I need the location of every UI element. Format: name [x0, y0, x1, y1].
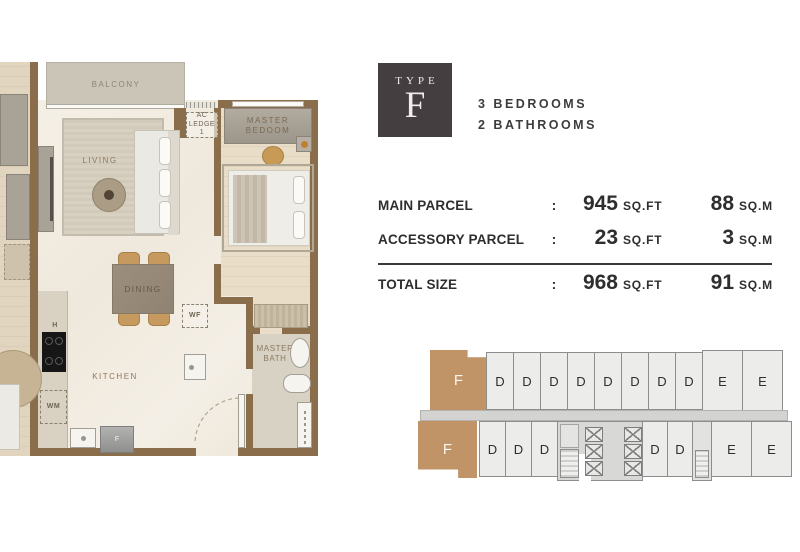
unit-letter: D [603, 374, 612, 389]
row-label: TOTAL SIZE [378, 277, 546, 292]
sofa-cushion [159, 137, 171, 165]
bedroom2-cabinet [6, 174, 30, 240]
elevator-icon [585, 427, 603, 442]
sqft-value: 23 [562, 226, 618, 250]
bed-throw [233, 175, 267, 243]
elevator-icon [624, 427, 642, 442]
bath-dresser [254, 304, 308, 328]
keyplan-bottom-e-units: E E [712, 421, 792, 477]
tv-icon [50, 157, 53, 221]
kitchen-sink [70, 428, 96, 448]
balcony-label: BALCONY [80, 80, 152, 90]
master-bedroom-label-2: BEDOOM [246, 126, 291, 135]
keyplan-unit-e: E [711, 421, 752, 477]
size-row-main-parcel: MAIN PARCEL : 945 SQ.FT 88 SQ.M [378, 192, 772, 226]
washing-machine: WM [40, 390, 67, 424]
row-colon: : [546, 231, 562, 247]
wf-box: WF [182, 304, 208, 328]
row-label: ACCESSORY PARCEL [378, 232, 546, 247]
sofa [134, 130, 180, 234]
keyplan-unit-d: D [567, 352, 595, 410]
unit-letter: D [630, 374, 639, 389]
keyplan-top-d-units: D D D D D D D D [487, 352, 703, 410]
unit-letter: D [650, 442, 659, 457]
sqm-value: 91 [674, 271, 734, 295]
keyplan-unit-e: E [702, 350, 743, 412]
size-table: MAIN PARCEL : 945 SQ.FT 88 SQ.M ACCESSOR… [378, 192, 772, 305]
sqm-unit: SQ.M [734, 233, 778, 247]
keyplan-corridor [420, 410, 788, 421]
keyplan-unit-d: D [540, 352, 568, 410]
keyplan-core [557, 421, 643, 481]
kitchen-label: KITCHEN [80, 372, 150, 382]
balcony-door-window [46, 104, 185, 109]
sqm-value: 88 [674, 192, 734, 216]
keyplan-unit-d: D [594, 352, 622, 410]
faucet-icon [81, 436, 86, 441]
entry-door-arc [192, 394, 244, 448]
row-colon: : [546, 197, 562, 213]
nightstand [296, 136, 312, 152]
ac-ledge-label-3: 1 [200, 129, 204, 136]
elevator-icon [585, 461, 603, 476]
coffee-table [92, 178, 126, 212]
master-window [232, 101, 304, 107]
hob-label: H [50, 322, 60, 331]
dining-label: DINING [125, 285, 162, 294]
stairs-icon [560, 449, 579, 478]
entry-door-leaf [238, 394, 245, 448]
keyplan-unit-d: D [667, 421, 693, 477]
ac-ledge-label-1: AC [197, 112, 208, 119]
bedroom3-bed [0, 384, 20, 450]
master-bed [228, 170, 310, 246]
bed-pillow [293, 211, 305, 239]
sqm-unit: SQ.M [734, 278, 778, 292]
sqm-unit: SQ.M [734, 199, 778, 213]
keyplan-unit-d: D [675, 352, 703, 410]
unit-letter: F [443, 441, 452, 458]
living-label: LIVING [70, 156, 130, 166]
master-bath-label-2: BATH [263, 354, 286, 363]
keyplan-unit-f-top: F [430, 350, 487, 410]
shower-door-icon [304, 408, 306, 444]
keyplan-top-e-units: E E [703, 350, 783, 412]
sqm-value: 3 [674, 226, 734, 250]
unit-letter: D [549, 374, 558, 389]
tv-cabinet [38, 146, 54, 232]
keyplan-unit-d: D [621, 352, 649, 410]
keyplan-unit-d: D [531, 421, 558, 477]
keyplan-unit-d: D [648, 352, 676, 410]
row-colon: : [546, 276, 562, 292]
unit-letter: E [758, 374, 767, 389]
wall-bath-left-lower [246, 394, 253, 450]
burner-icon [55, 357, 63, 365]
elevator-icon [624, 444, 642, 459]
type-badge: TYPE F [378, 63, 452, 137]
coffee-table-decor [104, 190, 114, 200]
unit-letter: D [675, 442, 684, 457]
knob-icon [189, 365, 194, 370]
keyplan-service-shaft [692, 421, 712, 481]
sofa-cushion [159, 201, 171, 229]
floorplan: LIVING BALCONY AC LEDGE 1 MASTER BEDOOM … [0, 58, 320, 462]
master-bath-label-1: MASTER [257, 344, 294, 353]
elevator-icon [624, 461, 642, 476]
sqft-value: 945 [562, 192, 618, 216]
bedrooms-text: 3 BEDROOMS [478, 94, 597, 115]
bathtub [283, 374, 311, 393]
bath-sink [290, 338, 310, 368]
unit-letter: D [488, 442, 497, 457]
ac-louver [186, 102, 216, 108]
keyplan-unit-e: E [751, 421, 792, 477]
unit-letter: D [495, 374, 504, 389]
table-divider [378, 263, 772, 265]
bedroom2-rug [4, 244, 30, 280]
building-key-plan: F D D D D D D D D E E F D D D D D [418, 345, 796, 485]
sqft-value: 968 [562, 271, 618, 295]
burner-icon [45, 357, 53, 365]
size-row-total: TOTAL SIZE : 968 SQ.FT 91 SQ.M [378, 271, 772, 305]
burner-icon [45, 337, 53, 345]
unit-letter: D [576, 374, 585, 389]
ac-ledge-label-2: LEDGE [189, 121, 215, 128]
sofa-cushion [159, 169, 171, 197]
bathrooms-text: 2 BATHROOMS [478, 115, 597, 136]
unit-summary: 3 BEDROOMS 2 BATHROOMS [478, 94, 597, 136]
keyplan-unit-d: D [505, 421, 532, 477]
unit-letter: D [522, 374, 531, 389]
unit-letter: E [727, 442, 736, 457]
unit-letter: E [718, 374, 727, 389]
unit-letter: D [684, 374, 693, 389]
unit-letter: D [514, 442, 523, 457]
size-row-accessory-parcel: ACCESSORY PARCEL : 23 SQ.FT 3 SQ.M [378, 226, 772, 260]
sqft-unit: SQ.FT [618, 199, 674, 213]
bedroom2-wardrobe [0, 94, 28, 166]
keyplan-unit-d: D [642, 421, 668, 477]
master-bedroom-label-1: MASTER [247, 116, 289, 125]
hob [42, 332, 66, 372]
unit-letter: F [454, 372, 463, 389]
type-letter: F [405, 87, 426, 126]
wf-label: WF [189, 312, 201, 321]
unit-letter: E [767, 442, 776, 457]
bed-pillow [293, 176, 305, 204]
sqft-unit: SQ.FT [618, 278, 674, 292]
appliance-box [184, 354, 206, 380]
stairs-icon [695, 450, 709, 478]
lamp-icon [301, 141, 308, 148]
keyplan-bottom-d-right-units: D D [643, 421, 693, 477]
stool [262, 146, 284, 166]
burner-icon [55, 337, 63, 345]
row-label: MAIN PARCEL [378, 198, 546, 213]
ac-ledge: AC LEDGE 1 [186, 112, 218, 138]
keyplan-unit-d: D [513, 352, 541, 410]
dining-table: DINING [112, 264, 174, 314]
keyplan-unit-d: D [479, 421, 506, 477]
sqft-unit: SQ.FT [618, 233, 674, 247]
core-lobby [560, 424, 579, 448]
unit-letter: D [540, 442, 549, 457]
unit-letter: D [657, 374, 666, 389]
keyplan-bottom-d-left-units: D D D [480, 421, 558, 477]
elevator-icon [585, 444, 603, 459]
fridge-label: F [115, 436, 119, 443]
keyplan-unit-f-bottom: F [418, 421, 477, 478]
fridge: F [100, 426, 134, 453]
shower [297, 402, 312, 448]
keyplan-unit-d: D [486, 352, 514, 410]
wm-label: WM [47, 403, 60, 412]
keyplan-unit-e: E [742, 350, 783, 412]
